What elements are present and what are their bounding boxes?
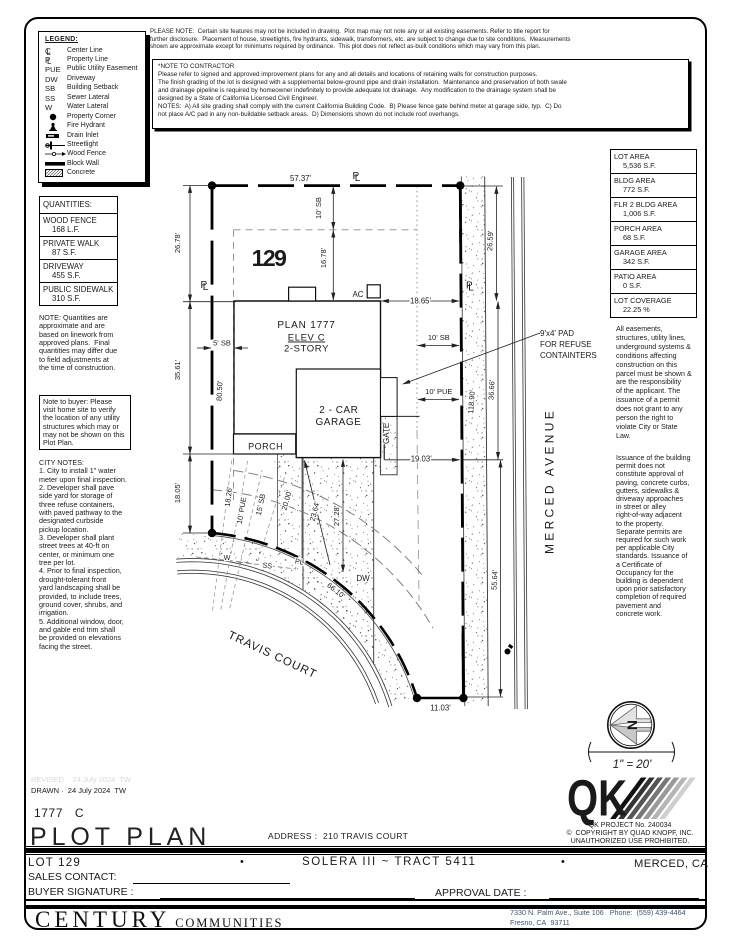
svg-text:TRAVIS COURT: TRAVIS COURT — [226, 629, 319, 681]
svg-text:QK PROJECT No. 240034: QK PROJECT No. 240034 — [589, 822, 672, 829]
svg-text:L: L — [468, 283, 474, 294]
svg-text:10' PUE: 10' PUE — [425, 387, 452, 396]
svg-text:18.65': 18.65' — [410, 297, 432, 306]
svg-text:DW: DW — [356, 574, 370, 583]
svg-text:55.64': 55.64' — [489, 569, 499, 590]
svg-text:© COPYRIGHT BY QUAD KNOPF, IN: © COPYRIGHT BY QUAD KNOPF, INC. — [566, 829, 693, 837]
svg-text:CONTAINTERS: CONTAINTERS — [540, 351, 597, 360]
svg-text:80.50': 80.50' — [214, 380, 224, 401]
svg-text:16.78': 16.78' — [319, 247, 328, 268]
svg-text:QK: QK — [567, 770, 627, 827]
svg-text:10' SB: 10' SB — [428, 333, 450, 342]
svg-text:N: N — [624, 720, 640, 730]
svg-text:5' SB: 5' SB — [213, 339, 231, 348]
svg-text:26.78': 26.78' — [173, 232, 182, 253]
svg-text:35.61': 35.61' — [173, 359, 182, 380]
svg-text:11.03': 11.03' — [430, 704, 451, 713]
svg-text:FOR REFUSE: FOR REFUSE — [540, 340, 592, 349]
svg-text:ELEV C: ELEV C — [288, 333, 325, 344]
svg-text:2 - CAR: 2 - CAR — [319, 405, 358, 416]
svg-text:AC: AC — [352, 290, 363, 299]
svg-text:57.37': 57.37' — [290, 174, 312, 183]
svg-text:118.90': 118.90' — [466, 389, 477, 414]
svg-text:SS: SS — [262, 560, 273, 570]
svg-text:UNAUTHORIZED USE PROHIBITED.: UNAUTHORIZED USE PROHIBITED. — [571, 838, 690, 845]
svg-text:PLAN 1777: PLAN 1777 — [277, 320, 335, 331]
svg-text:10' SB: 10' SB — [314, 197, 323, 219]
svg-text:MERCED AVENUE: MERCED AVENUE — [542, 408, 556, 554]
svg-text:18.05': 18.05' — [173, 482, 182, 503]
svg-text:W: W — [224, 553, 231, 562]
svg-text:27.28': 27.28' — [332, 505, 341, 526]
svg-text:L: L — [203, 282, 209, 293]
svg-text:10' PUE: 10' PUE — [235, 496, 249, 524]
svg-text:GARAGE: GARAGE — [316, 417, 362, 428]
svg-text:PORCH: PORCH — [248, 442, 283, 452]
svg-text:GATE: GATE — [382, 423, 391, 444]
svg-text:129: 129 — [252, 245, 287, 271]
svg-text:9'x4' PAD: 9'x4' PAD — [540, 329, 574, 338]
svg-text:L: L — [355, 173, 361, 184]
svg-text:36.66': 36.66' — [486, 379, 496, 400]
svg-text:2-STORY: 2-STORY — [284, 344, 329, 355]
svg-text:18.26': 18.26' — [223, 486, 234, 508]
svg-text:PL: PL — [294, 556, 304, 566]
svg-text:26.59': 26.59' — [485, 230, 495, 251]
svg-text:19.03': 19.03' — [411, 455, 433, 464]
